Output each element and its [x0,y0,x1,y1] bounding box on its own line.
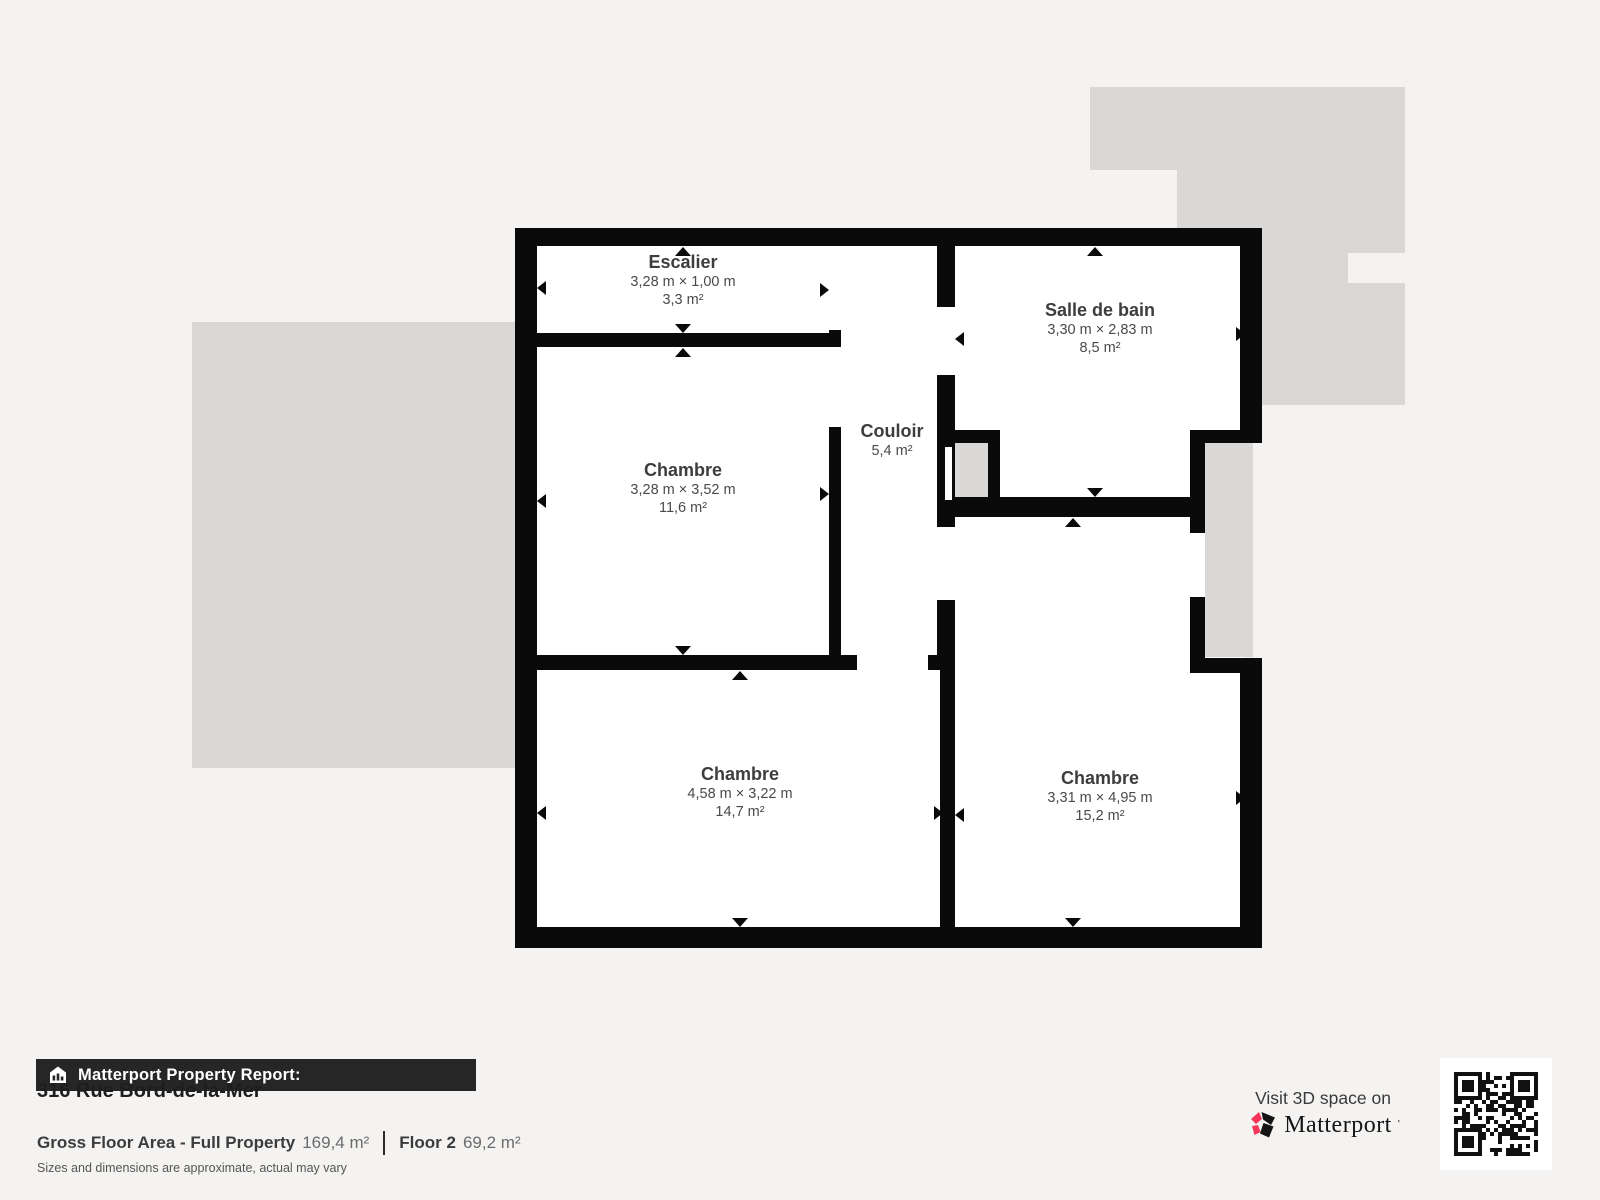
gross-area-value: 169,4 m² [302,1133,369,1153]
wall [988,430,1000,517]
room-name: Couloir [861,421,924,442]
wall [1190,443,1205,533]
dimension-arrow [732,918,748,927]
dimension-arrow [1236,791,1245,805]
wall [515,228,1262,246]
property-address: 316 Rue Bord-de-la-Mer [37,1080,262,1103]
room-label-chambre-nw: Chambre 3,28 m × 3,52 m 11,6 m² [630,460,735,517]
area-summary: Gross Floor Area - Full Property 169,4 m… [37,1131,521,1155]
dimension-arrow [934,806,943,820]
room-area-value: 3,3 m² [662,291,703,309]
room-area [537,246,955,927]
dimension-arrow [675,646,691,655]
dimension-arrow [537,281,546,295]
room-dimensions: 3,31 m × 4,95 m [1047,789,1152,807]
dimension-arrow [955,808,964,822]
dimension-arrow [675,348,691,357]
matterport-pinwheel-icon [1248,1110,1278,1140]
dimension-arrow [1236,327,1245,341]
adjacent-floor-outline [1090,87,1405,170]
room-area [955,517,1245,927]
room-label-chambre-se: Chambre 3,31 m × 4,95 m 15,2 m² [1047,768,1152,825]
wall [1190,430,1250,443]
trademark-mark: ' [1398,1120,1400,1130]
visit-3d-text: Visit 3D space on [1254,1088,1392,1109]
room-label-couloir: Couloir 5,4 m² [861,421,924,460]
dimension-arrow [820,283,829,297]
door-opening [945,447,952,500]
room-dimensions: 3,28 m × 1,00 m [630,273,735,291]
dimension-arrow [820,487,829,501]
room-area-value: 5,4 m² [871,442,912,460]
wall [515,655,841,670]
wall [829,330,841,343]
room-name: Chambre [701,764,779,785]
dimension-arrow [1065,918,1081,927]
dimension-arrow [537,806,546,820]
room-area-value: 8,5 m² [1079,339,1120,357]
dimension-arrow [732,671,748,680]
adjacent-floor-outline [192,322,525,768]
room-dimensions: 4,58 m × 3,22 m [687,785,792,803]
dimension-arrow [675,324,691,333]
room-label-salle-de-bain: Salle de bain 3,30 m × 2,83 m 8,5 m² [1045,300,1155,357]
wall [937,246,955,307]
wall [928,655,955,670]
matterport-logo: Matterport ' [1254,1110,1394,1140]
room-label-chambre-sw: Chambre 4,58 m × 3,22 m 14,7 m² [687,764,792,821]
room-label-escalier: Escalier 3,28 m × 1,00 m 3,3 m² [630,252,735,309]
adjacent-floor-notch [1348,253,1405,283]
room-name: Escalier [648,252,717,273]
floor-area-value: 69,2 m² [463,1133,521,1153]
qr-code [1440,1058,1552,1170]
gross-area-label: Gross Floor Area - Full Property [37,1133,295,1153]
dimension-arrow [1065,518,1081,527]
room-name: Salle de bain [1045,300,1155,321]
recess-inset [1205,443,1253,657]
room-name: Chambre [1061,768,1139,789]
room-area-value: 15,2 m² [1075,807,1124,825]
closet-inset [955,443,988,505]
room-dimensions: 3,28 m × 3,52 m [630,481,735,499]
floor-label: Floor 2 [399,1133,456,1153]
dimension-arrow [1087,488,1103,497]
disclaimer-text: Sizes and dimensions are approximate, ac… [37,1161,347,1175]
wall [943,497,1205,517]
dimension-arrow [1087,247,1103,256]
wall [515,333,841,347]
wall [1190,658,1262,673]
floorplan-report-page: Escalier 3,28 m × 1,00 m 3,3 m² Chambre … [0,0,1600,1200]
dimension-arrow [955,332,964,346]
divider [383,1131,385,1155]
room-name: Chambre [644,460,722,481]
wall [937,600,955,655]
matterport-wordmark: Matterport [1284,1112,1392,1139]
wall [515,927,1262,948]
wall [829,427,841,655]
dimension-arrow [537,494,546,508]
room-area-value: 11,6 m² [659,499,707,517]
room-dimensions: 3,30 m × 2,83 m [1047,321,1152,339]
room-area-value: 14,7 m² [715,803,764,821]
